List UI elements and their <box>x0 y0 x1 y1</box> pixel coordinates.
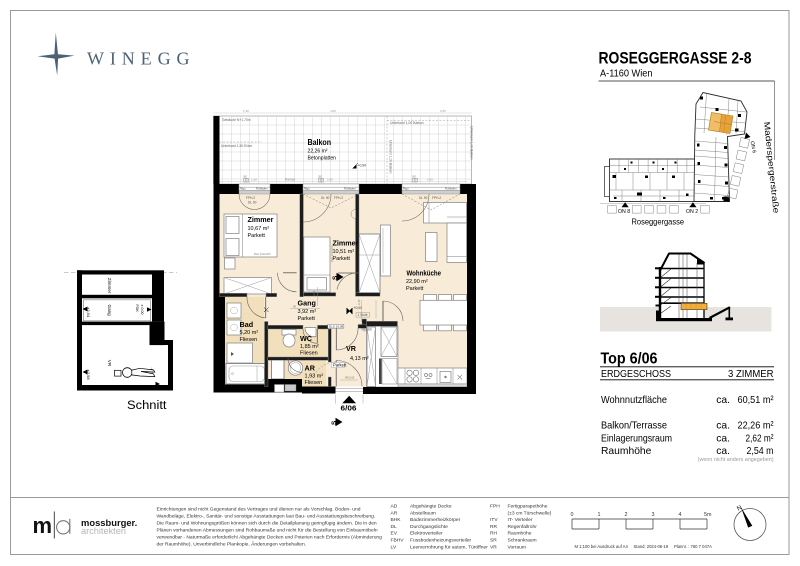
svg-text:4,13 m²: 4,13 m² <box>350 356 369 362</box>
svg-text:AR: AR <box>391 510 398 516</box>
svg-text:ROSEGGERGASSE 2-8: ROSEGGERGASSE 2-8 <box>599 49 752 68</box>
svg-text:DL: DL <box>391 524 398 530</box>
svg-text:S: S <box>332 275 339 280</box>
svg-text:DL 90: DL 90 <box>248 201 257 205</box>
svg-text:Bett 160x200: Bett 160x200 <box>254 252 271 256</box>
svg-text:1,93 m²: 1,93 m² <box>305 374 324 380</box>
svg-text:BE: BE <box>413 175 417 179</box>
svg-text:WC: WC <box>300 334 312 343</box>
svg-text:6/06: 6/06 <box>341 406 357 413</box>
svg-text:BE: BE <box>319 175 323 179</box>
svg-text:2,54 m: 2,54 m <box>747 446 774 457</box>
svg-text:Vorraum: Vorraum <box>508 544 526 550</box>
svg-text:Parkett: Parkett <box>333 363 347 368</box>
svg-text:Rigo: Rigo <box>403 186 409 190</box>
svg-text:RR: RR <box>490 524 498 530</box>
svg-text:Teppich: Teppich <box>361 328 372 332</box>
svg-text:Schrankraum: Schrankraum <box>508 538 537 544</box>
svg-text:ca.: ca. <box>716 446 730 457</box>
svg-text:Badezimmerheizkörper: Badezimmerheizkörper <box>410 517 461 523</box>
svg-text:1,58: 1,58 <box>251 177 257 181</box>
svg-text:VR: VR <box>107 360 112 367</box>
svg-text:60,51 m²: 60,51 m² <box>738 395 775 406</box>
svg-text:DL 90: DL 90 <box>321 196 330 200</box>
svg-text:Rollladen: Rollladen <box>256 186 268 190</box>
svg-text:Raumhöhe: Raumhöhe <box>601 446 652 457</box>
svg-text:± 0,00: ± 0,00 <box>140 305 144 315</box>
svg-text:Zimmer: Zimmer <box>248 215 274 224</box>
svg-text:0: 0 <box>571 512 574 518</box>
svg-text:Rollladen: Rollladen <box>445 186 457 190</box>
svg-text:2,80: 2,80 <box>327 177 333 181</box>
svg-text:VR: VR <box>346 344 357 353</box>
svg-text:Stand: 2024-06-19: Stand: 2024-06-19 <box>634 544 669 549</box>
svg-text:FPH-2: FPH-2 <box>246 196 255 200</box>
svg-text:0,45: 0,45 <box>357 299 361 305</box>
svg-text:ca.: ca. <box>716 433 730 444</box>
svg-text:Bad: Bad <box>240 320 254 329</box>
svg-text:RH: RH <box>490 531 498 537</box>
svg-text:Zimmer: Zimmer <box>333 239 359 248</box>
svg-text:90/2,05: 90/2,05 <box>345 376 355 380</box>
svg-text:(wenn nicht anders angegeben): (wenn nicht anders angegeben) <box>698 457 774 463</box>
svg-text:Regenfallrohr: Regenfallrohr <box>508 524 538 530</box>
svg-text:Plänen vorhandenen Abmessungen: Plänen vorhandenen Abmessungen sind Rohb… <box>157 528 378 534</box>
svg-text:Plannr. : 760 7 047A: Plannr. : 760 7 047A <box>674 544 712 549</box>
svg-text:Die Raum- und Wohnungsgrößen k: Die Raum- und Wohnungsgrößen können sich… <box>157 521 377 527</box>
svg-text:Unterkant 1,00 Balkon: Unterkant 1,00 Balkon <box>469 126 473 160</box>
svg-text:Wandbeläge, Elektro-, Sanitär-: Wandbeläge, Elektro-, Sanitär- und sonst… <box>157 514 376 520</box>
svg-text:+2,54: +2,54 <box>86 307 91 318</box>
svg-text:1 Stufe: 1 Stufe <box>358 313 368 317</box>
svg-text:ON 8: ON 8 <box>618 209 630 215</box>
svg-text:M 1:100 bei Ausdruck auf A4: M 1:100 bei Ausdruck auf A4 <box>575 544 629 549</box>
svg-text:22,26 m²: 22,26 m² <box>738 421 775 432</box>
svg-text:2,62 m²: 2,62 m² <box>746 433 774 444</box>
svg-text:(±3 cm Türschwelle): (±3 cm Türschwelle) <box>508 510 552 516</box>
svg-text:S: S <box>331 420 338 425</box>
svg-text:A-1160 Wien: A-1160 Wien <box>600 68 653 80</box>
svg-text:Raumhöhe: Raumhöhe <box>508 531 532 537</box>
svg-text:Wohnküche: Wohnküche <box>407 269 442 278</box>
svg-text:5,20 m²: 5,20 m² <box>240 330 259 336</box>
svg-text:Top 6/06: Top 6/06 <box>601 351 658 368</box>
svg-text:Balkon/Terrasse: Balkon/Terrasse <box>601 421 667 432</box>
svg-text:Leerverrohrung für autom. Türö: Leerverrohrung für autom. Türöffner <box>410 544 488 550</box>
svg-text:1: 1 <box>598 512 601 518</box>
svg-text:Parkett: Parkett <box>333 256 351 262</box>
svg-text:FOK: FOK <box>135 305 139 313</box>
svg-text:3 ZIMMER: 3 ZIMMER <box>728 369 774 380</box>
svg-text:ITV: ITV <box>490 517 498 523</box>
svg-text:Einrichtungen sind nicht Gegen: Einrichtungen sind nicht Gegenstand des … <box>157 507 361 513</box>
svg-text:10,51 m²: 10,51 m² <box>333 249 355 255</box>
svg-text:BHK: BHK <box>391 517 402 523</box>
svg-text:Parkett: Parkett <box>248 233 266 239</box>
svg-text:22,26 m²: 22,26 m² <box>308 149 328 155</box>
svg-text:Fliesen: Fliesen <box>300 351 318 357</box>
svg-text:22,90 m²: 22,90 m² <box>406 279 428 285</box>
svg-text:3: 3 <box>652 512 655 518</box>
svg-text:1,85 m²: 1,85 m² <box>300 344 319 350</box>
svg-text:Wohnnutzfläche: Wohnnutzfläche <box>601 395 667 406</box>
svg-text:architekten: architekten <box>81 526 126 536</box>
svg-text:Betonplatten: Betonplatten <box>308 156 337 162</box>
svg-text:2: 2 <box>625 512 628 518</box>
svg-text:Fliesen: Fliesen <box>305 380 323 386</box>
svg-text:m: m <box>33 513 53 538</box>
svg-text:Abgehängte Decke: Abgehängte Decke <box>410 504 452 510</box>
svg-text:Gang: Gang <box>298 299 316 308</box>
svg-text:FPH-2: FPH-2 <box>334 196 343 200</box>
svg-text:Fertigparapethöhe: Fertigparapethöhe <box>508 504 548 510</box>
svg-text:Schnitt: Schnitt <box>127 398 167 412</box>
svg-text:Elektroverteiler: Elektroverteiler <box>410 531 443 537</box>
svg-text:ca.: ca. <box>716 421 730 432</box>
svg-text:Zimmer: Zimmer <box>107 278 112 294</box>
svg-text:4,50: 4,50 <box>330 109 336 113</box>
svg-text:Durchgangslichte: Durchgangslichte <box>410 524 448 530</box>
svg-text:der Raumhöhe). Unverbindliche: der Raumhöhe). Unverbindliche Plankopie,… <box>157 541 307 548</box>
svg-text:3,92 m²: 3,92 m² <box>298 309 317 315</box>
svg-text:ERDGESCHOSS: ERDGESCHOSS <box>601 369 671 380</box>
svg-text:+2,98: +2,98 <box>86 370 91 381</box>
svg-text:Gang: Gang <box>107 305 112 317</box>
svg-text:Parkett: Parkett <box>298 316 316 322</box>
svg-text:Balkon: Balkon <box>308 138 332 147</box>
svg-text:Unterkant 1,00 Balkon: Unterkant 1,00 Balkon <box>388 140 392 174</box>
svg-text:verwendbar - Naturmaße erforde: verwendbar - Naturmaße erforderlich! Abg… <box>157 535 383 541</box>
svg-text:Rampe: Rampe <box>285 178 296 182</box>
svg-text:DL 90: DL 90 <box>419 196 428 200</box>
svg-text:FPH: FPH <box>490 504 500 510</box>
svg-text:+0,00: +0,00 <box>354 306 363 310</box>
svg-text:FBHV: FBHV <box>391 538 405 544</box>
svg-text:EV: EV <box>391 531 398 537</box>
svg-text:SR: SR <box>490 538 497 544</box>
svg-text:AD: AD <box>391 504 398 510</box>
svg-text:Abstellraum: Abstellraum <box>410 510 436 516</box>
svg-text:Roseggergasse: Roseggergasse <box>632 217 685 227</box>
svg-text:4: 4 <box>679 512 682 518</box>
svg-text:WINEGG: WINEGG <box>87 49 195 69</box>
svg-text:Rigo: Rigo <box>304 186 310 190</box>
svg-text:DLS 19,08: DLS 19,08 <box>329 325 344 329</box>
svg-text:VR: VR <box>490 544 497 550</box>
svg-text:Rollladen: Rollladen <box>344 186 356 190</box>
svg-text:ca.: ca. <box>716 395 730 406</box>
svg-text:Rigo: Rigo <box>240 186 246 190</box>
svg-text:IT- Verteiler: IT- Verteiler <box>508 517 533 523</box>
svg-text:Gebäude N+1,70m: Gebäude N+1,70m <box>222 118 251 122</box>
svg-text:2,90: 2,90 <box>427 177 433 181</box>
svg-text:Unterkant 1,50 Erker: Unterkant 1,50 Erker <box>221 144 253 148</box>
svg-text:BE: BE <box>244 175 248 179</box>
svg-text:Fliesen: Fliesen <box>240 337 258 343</box>
svg-text:Parkett: Parkett <box>406 286 424 292</box>
svg-text:3,55: 3,55 <box>440 109 446 113</box>
svg-text:10,67 m²: 10,67 m² <box>248 226 270 232</box>
svg-text:FPH-2: FPH-2 <box>432 196 441 200</box>
svg-text:ON 2: ON 2 <box>686 209 698 215</box>
svg-text:2,01: 2,01 <box>312 290 316 296</box>
svg-text:1,38: 1,38 <box>243 109 249 113</box>
svg-text:Einlagerungsraum: Einlagerungsraum <box>601 433 672 444</box>
svg-text:Fussbodenheizungsverteiler: Fussbodenheizungsverteiler <box>410 538 472 544</box>
svg-text:LV: LV <box>391 544 397 550</box>
svg-text:+0,90: +0,90 <box>358 164 367 168</box>
svg-text:AR: AR <box>305 364 316 373</box>
svg-text:Unterkant 1,00 Balkon: Unterkant 1,00 Balkon <box>390 121 424 125</box>
svg-text:5m: 5m <box>704 512 712 518</box>
svg-text:90: 90 <box>293 305 297 309</box>
